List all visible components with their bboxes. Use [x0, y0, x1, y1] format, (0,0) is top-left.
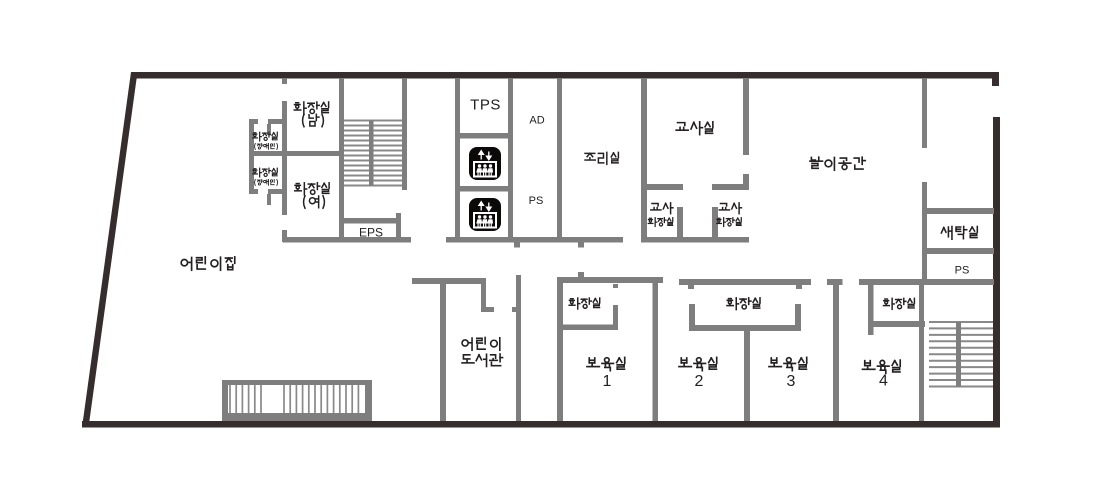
svg-text:PS: PS	[529, 195, 544, 207]
svg-text:1: 1	[603, 373, 612, 390]
svg-text:2: 2	[695, 373, 704, 390]
svg-text:EPS: EPS	[359, 226, 383, 240]
svg-text:4: 4	[879, 373, 888, 390]
svg-text:TPS: TPS	[470, 97, 501, 114]
svg-text:PS: PS	[955, 265, 970, 277]
svg-text:AD: AD	[529, 115, 544, 127]
svg-text:3: 3	[787, 373, 796, 390]
